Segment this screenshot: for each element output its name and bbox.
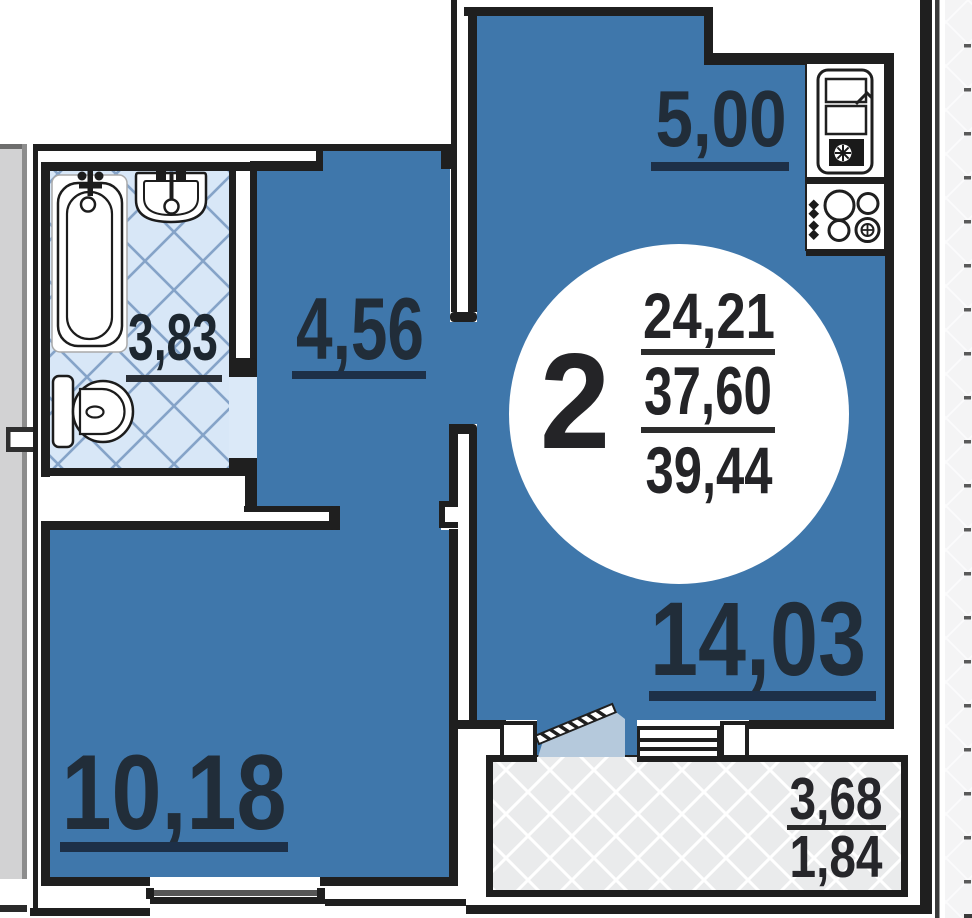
svg-text:3,83: 3,83 bbox=[128, 300, 218, 374]
svg-text:1,84: 1,84 bbox=[790, 824, 883, 890]
svg-text:4,56: 4,56 bbox=[296, 279, 424, 378]
svg-text:14,03: 14,03 bbox=[650, 581, 866, 698]
svg-text:24,21: 24,21 bbox=[643, 280, 775, 352]
svg-text:10,18: 10,18 bbox=[62, 732, 287, 852]
svg-text:2: 2 bbox=[540, 325, 610, 477]
svg-text:39,44: 39,44 bbox=[646, 433, 773, 507]
svg-text:37,60: 37,60 bbox=[644, 353, 772, 429]
svg-text:5,00: 5,00 bbox=[656, 74, 787, 163]
svg-text:3,68: 3,68 bbox=[790, 766, 883, 832]
